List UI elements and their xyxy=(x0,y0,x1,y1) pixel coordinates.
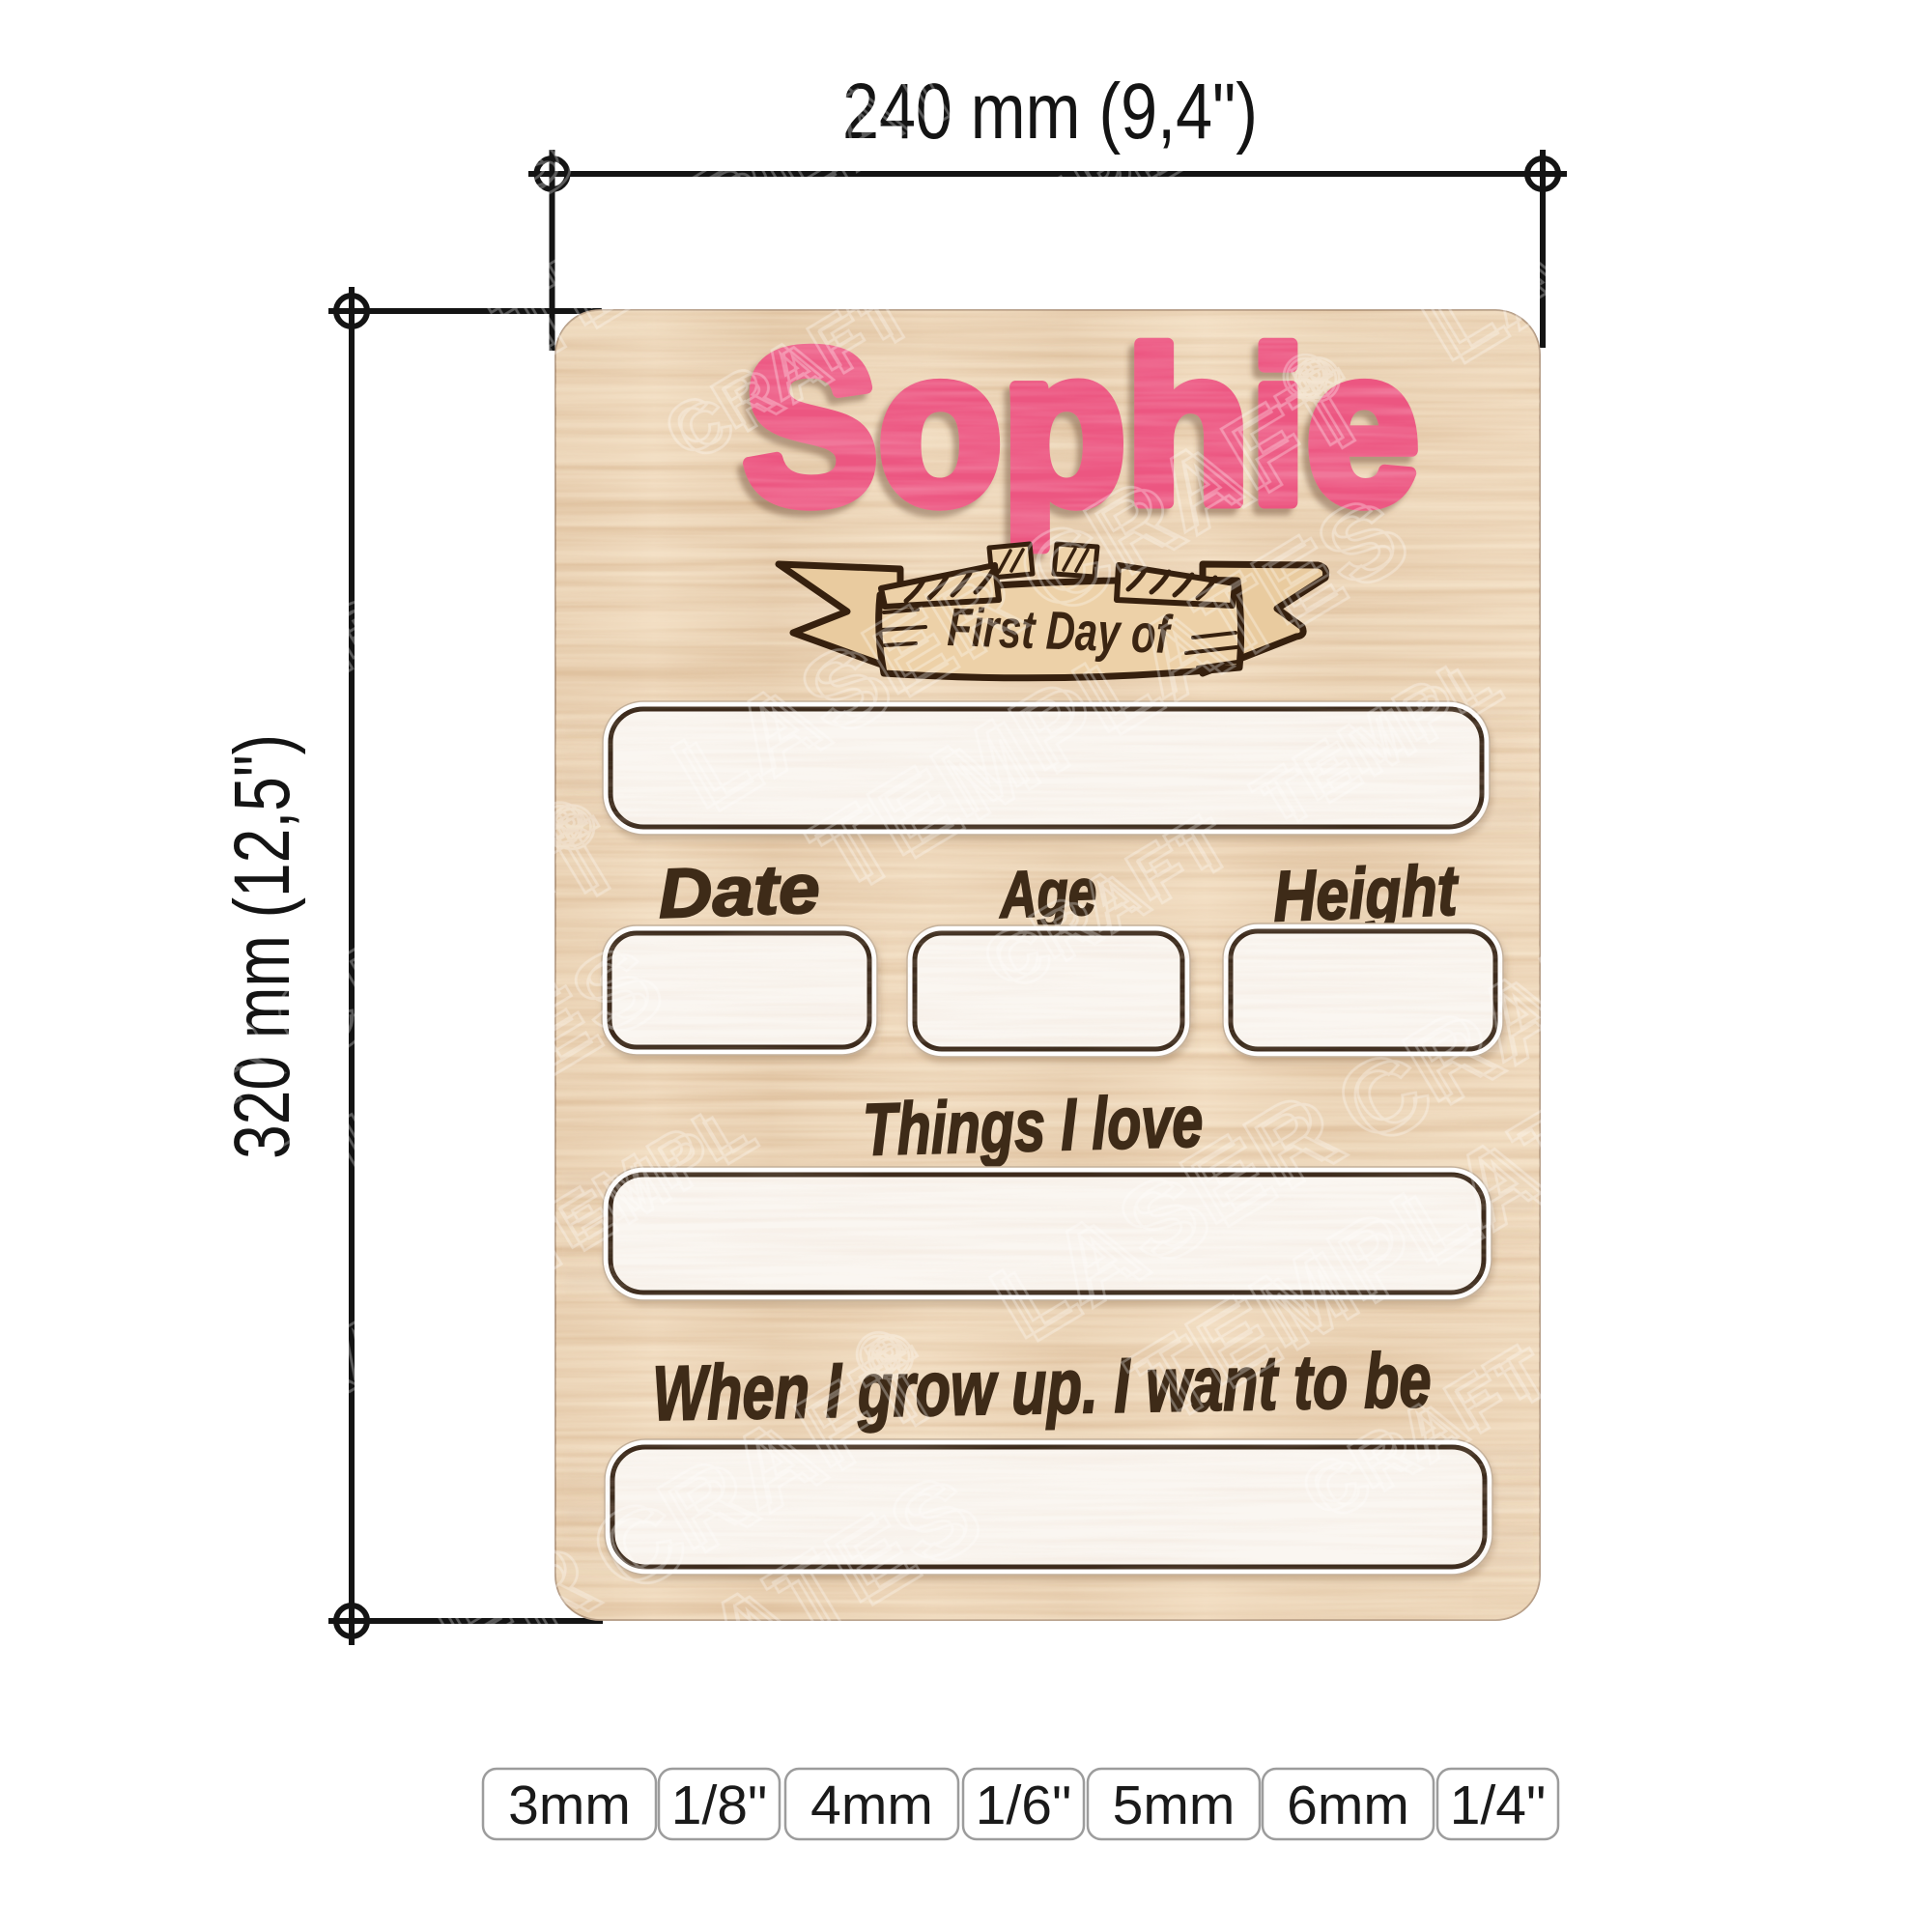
svg-text:4mm: 4mm xyxy=(810,1775,933,1836)
svg-text:1/6": 1/6" xyxy=(976,1775,1071,1836)
svg-text:5mm: 5mm xyxy=(1113,1775,1236,1836)
svg-text:3mm: 3mm xyxy=(508,1775,631,1836)
svg-text:6mm: 6mm xyxy=(1287,1775,1409,1836)
svg-text:1/8": 1/8" xyxy=(671,1775,767,1836)
svg-text:1/4": 1/4" xyxy=(1450,1775,1546,1836)
